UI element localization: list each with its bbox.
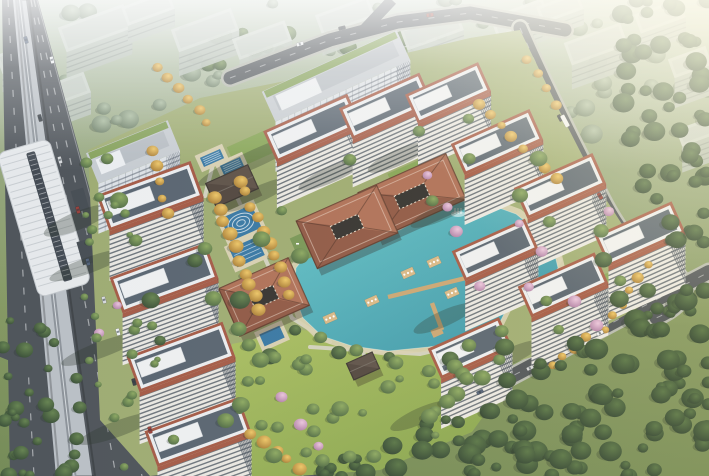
atmosphere: [0, 0, 709, 476]
aerial-render-figure: [0, 0, 709, 476]
scene-canvas: [0, 0, 709, 476]
